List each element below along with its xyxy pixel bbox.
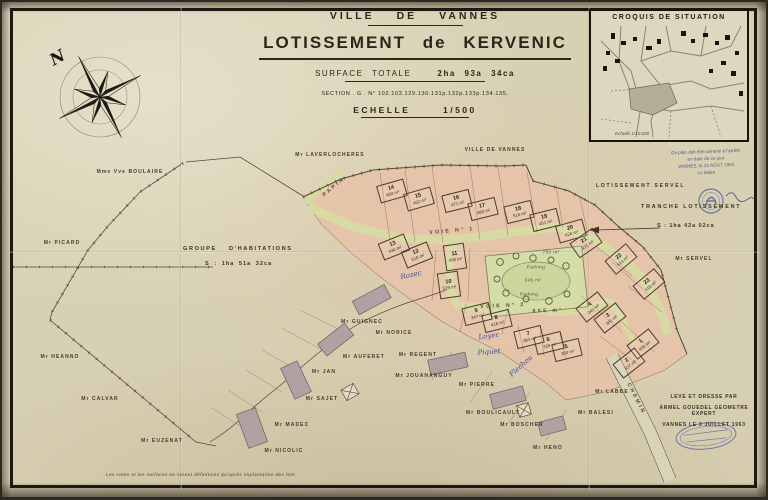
owner-label: Mr BALESI [578,410,614,416]
owner-label: Mr LABBE [595,389,629,395]
tranche-lotissement-block: TRANCHE LOTISSEMENT S : 1ha 42a 02ca [641,204,741,229]
owner-label: Mr SERVEL [675,256,712,262]
owner-label: Mr HENO [533,445,563,451]
lot-area: 350 m² [561,349,575,357]
approval-stamp-text: Ce plan doit être annexé à l'arrêtéen da… [660,147,753,178]
groupe-title: GROUPE D'HABITATIONS [183,246,293,252]
title-block: VILLE DE VANNES LOTISSEMENT de KERVENIC … [250,10,580,125]
situation-sketch-map [591,11,747,140]
lot-area: 516 m² [513,211,527,219]
owner-label: Mr PIERRE [459,382,495,388]
owner-label: Mr CALVAR [81,396,119,402]
underline [259,58,571,60]
lot-area: 471 m² [451,200,465,208]
lot-area: 347 m² [471,313,485,321]
scanned-plan-photo: VILLE DE VANNES LOTISSEMENT de KERVENIC … [0,0,768,500]
place-label: Parking [527,265,545,270]
plan-title: LOTISSEMENT de KERVENIC [250,33,580,53]
signature [726,193,756,202]
lot-area: 484 m² [386,190,400,198]
scale-value: 1/500 [443,105,477,115]
owner-label: VILLE DE VANNES [465,147,526,153]
owner-label: Mr BOULICAULT [466,410,520,416]
lot-area: 451 m² [539,219,553,227]
owner-label: Mr REGENT [399,352,437,358]
handwritten-note: Piquet [477,347,500,357]
lot-area: 383 m² [523,336,537,344]
surface-total: SURFACE TOTALE 2ha 93a 34ca [250,69,580,78]
fold-crease [180,6,182,490]
scale-line: ECHELLE 1/500 [250,105,580,115]
owner-label: Mr PICARD [44,240,81,246]
owner-label: Mr NORICE [376,330,413,336]
lot-parcel: 11438 m² [443,243,467,272]
lot-area: 418 m² [491,320,505,328]
approval-line: Le Maire [660,168,752,176]
owner-label: Mr HEANNO [40,354,79,360]
owner-label: Mr AUFERET [343,354,385,360]
surface-label: SURFACE TOTALE [315,69,411,78]
underline [368,25,463,26]
section-reference: SECTION . G . N° 102.103.129.130.131p.13… [250,91,580,97]
tranche-area: S : 1ha 42a 02ca [657,223,741,229]
lot-area: 462 m² [413,198,427,206]
owner-label: Mr JAN [312,369,336,375]
owner-label: Mr NICOLIC [264,448,303,454]
owner-label: Mr GUIGNEC [341,319,383,325]
surveyor-block: LEVE ET DRESSE PARARMEL GOUEDEL GEOMETRE… [648,394,760,433]
surveyor-line: ARMEL GOUEDEL GEOMETRE EXPERT [648,405,760,417]
owner-label: Mr EUZENAT [141,438,183,444]
situation-sketch: CROQUIS DE SITUATION Echelle 1/10.000 [589,9,749,142]
footnote: Les cotes et les surfaces ne seront défi… [106,472,295,477]
lot-area: 438 m² [448,257,462,263]
place-label: Parking [520,292,538,297]
lot-parcel: 10519 m² [437,271,461,300]
owner-label: Mr JOUANANGUY [395,373,452,379]
groupe-habitations-block: GROUPE D'HABITATIONS S : 1ha 51a 32ca [183,246,293,267]
groupe-area: S : 1ha 51a 32ca [205,261,293,267]
parcel-highlight [629,83,677,115]
tranche-title: TRANCHE LOTISSEMENT [641,204,741,210]
owner-label: Mr SAJET [306,396,338,402]
lot-area: 339 m² [543,342,557,350]
owner-label: Mr LAVERLOCHERES [295,152,364,158]
owner-label: Mr BOSCHER [500,422,544,428]
scale-label: ECHELLE [353,105,410,115]
place-label: 545 m² [525,278,542,283]
owner-label: Mr MADEC [275,422,310,428]
underline [345,81,485,82]
surveyor-line: VANNES LE 3 JUILLET 1963 [648,422,760,428]
underline [361,117,469,118]
surveyor-line: LEVE ET DRESSE PAR [648,394,760,400]
city-title: VILLE DE VANNES [250,10,580,22]
place-label: 750 m² [543,250,560,255]
lot-area: 460 m² [477,208,491,216]
lot-area: 519 m² [442,285,456,291]
owner-label: Mme Vve BOULAIRE [97,169,164,175]
situation-sketch-scale: Echelle 1/10.000 [615,131,649,136]
surface-value: 2ha 93a 34ca [438,69,515,78]
servel-lotissement-label: LOTISSEMENT SERVEL [596,183,685,189]
